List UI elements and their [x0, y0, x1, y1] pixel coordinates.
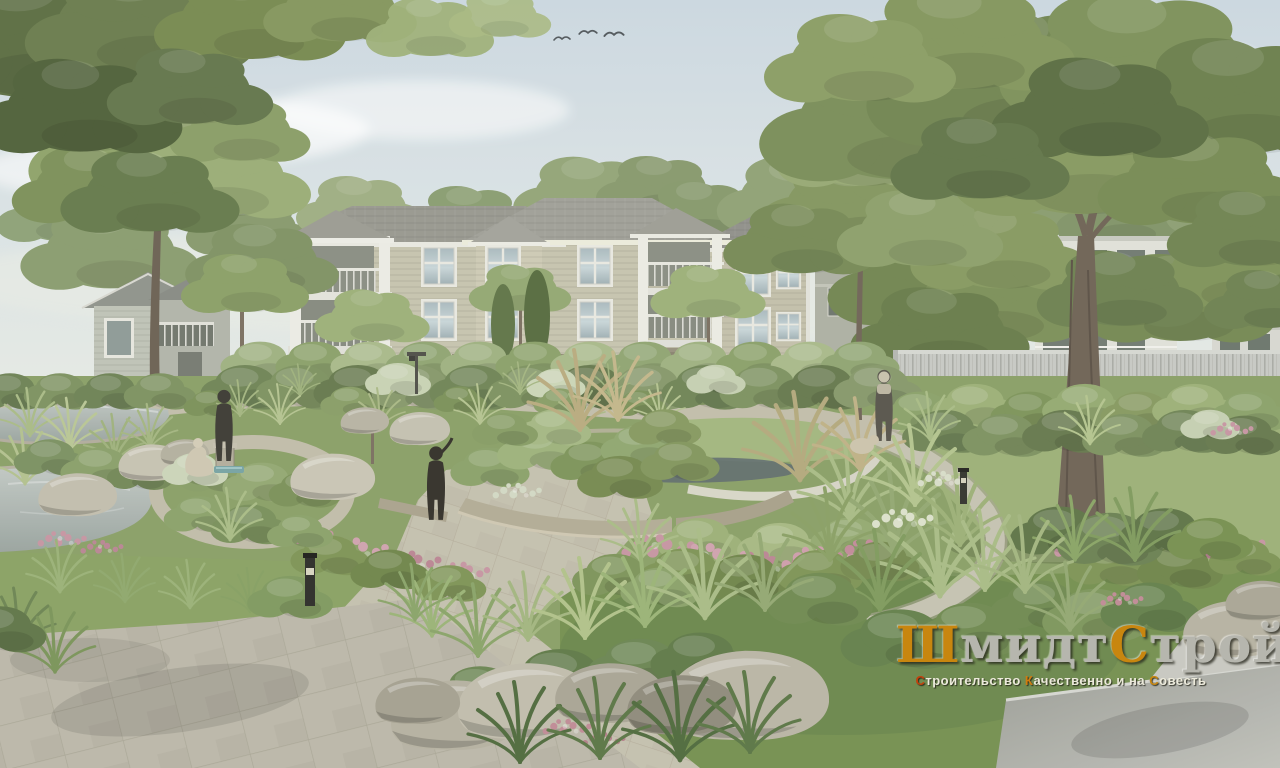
atmosphere-wash [0, 0, 1280, 768]
scene-canvas [0, 0, 1280, 768]
architectural-rendering: ШмидтСтрой Строительство Качественно и н… [0, 0, 1280, 768]
